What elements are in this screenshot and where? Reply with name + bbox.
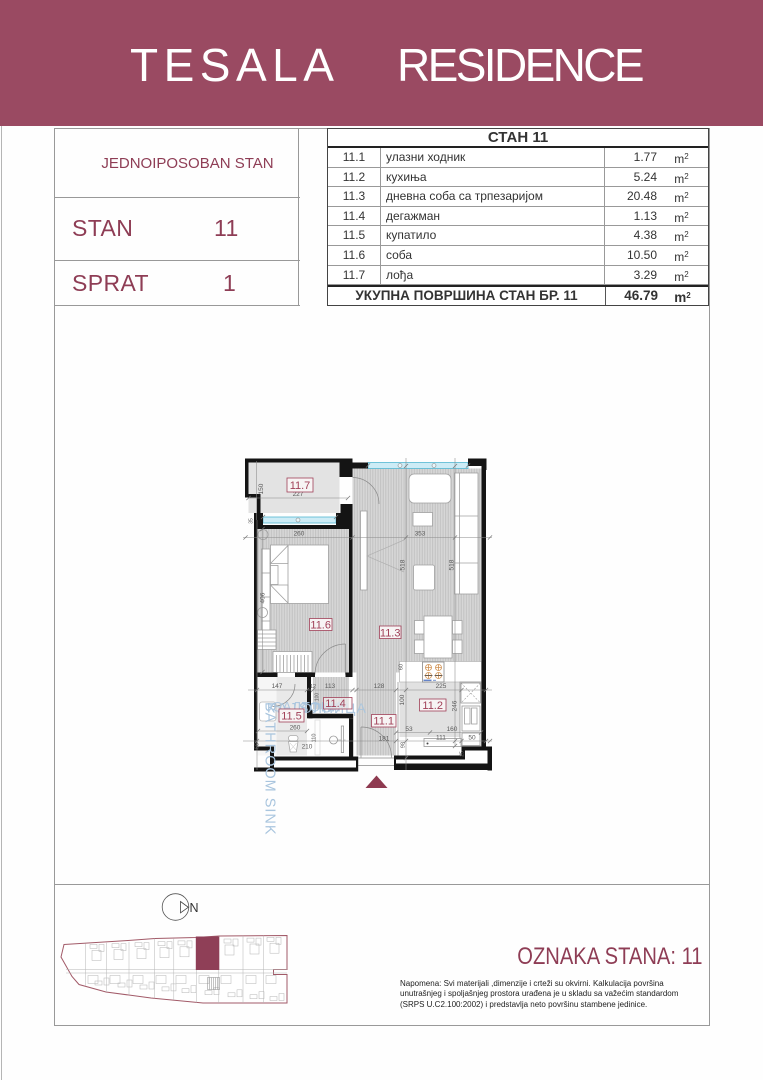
svg-text:11.3: 11.3 [380,628,401,640]
svg-text:11.6: 11.6 [310,620,331,632]
svg-text:111: 111 [436,735,446,742]
svg-text:147: 147 [272,683,283,690]
svg-text:128: 128 [374,683,385,690]
svg-text:53: 53 [405,726,413,733]
svg-text:260: 260 [290,725,301,732]
svg-text:518: 518 [400,559,407,570]
svg-text:N: N [190,901,199,915]
svg-text:260: 260 [294,531,305,538]
svg-text:12: 12 [310,684,316,690]
svg-text:11.5: 11.5 [281,711,302,723]
svg-text:55: 55 [255,743,261,749]
svg-text:518: 518 [449,559,456,570]
svg-text:50: 50 [468,735,476,742]
svg-text:353: 353 [415,531,426,538]
svg-text:11.1: 11.1 [373,716,394,728]
svg-text:25: 25 [460,751,466,757]
svg-text:181: 181 [379,736,390,743]
svg-text:150: 150 [258,483,265,494]
svg-text:225: 225 [436,683,447,690]
svg-text:60: 60 [399,664,405,670]
svg-text:100: 100 [399,694,406,705]
svg-text:11.2: 11.2 [422,700,443,712]
svg-text:113: 113 [325,683,336,690]
svg-text:35: 35 [249,518,255,524]
svg-text:11.7: 11.7 [290,480,311,492]
svg-text:98: 98 [401,742,407,748]
svg-text:406: 406 [260,592,267,603]
svg-text:246: 246 [452,700,459,711]
svg-text:BATHROOM SINK: BATHROOM SINK [262,702,278,836]
svg-text:11.4: 11.4 [325,698,346,710]
svg-text:210: 210 [302,744,313,751]
svg-text:160: 160 [447,726,458,733]
svg-text:110: 110 [312,734,318,743]
